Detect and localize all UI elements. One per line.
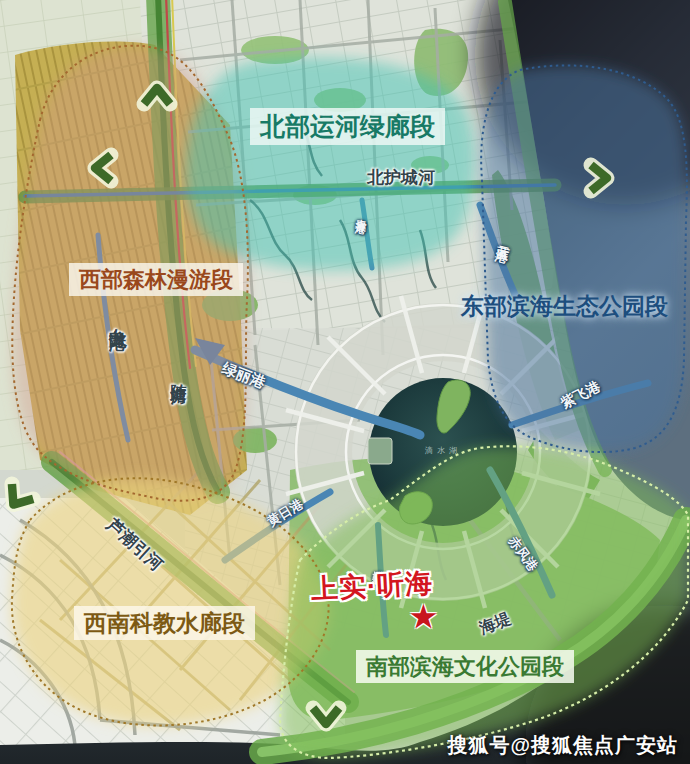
- zone-label-west-forest: 西部森林漫游段: [69, 263, 243, 296]
- river-label-chenghegang: 橙和港: [371, 562, 384, 568]
- zone-label-south-culture: 南部滨海文化公园段: [356, 650, 574, 683]
- river-label-suitanghe: 随塘河: [169, 371, 187, 377]
- zone-label-southwest-water: 西南科教水廊段: [74, 606, 255, 640]
- project-star-icon: ★: [410, 600, 437, 635]
- river-label-bailonggang: 白龙港: [107, 314, 128, 320]
- watermark: 搜狐号@搜狐焦点广安站: [447, 734, 678, 757]
- lake-label: 滴水湖: [425, 446, 461, 455]
- zone-label-north-canal: 北部运河绿廊段: [250, 108, 445, 145]
- river-label-beihuchenghe: 北护城河: [367, 168, 435, 188]
- zone-label-east-coastal: 东部滨海生态公园段: [461, 293, 668, 319]
- planning-map: 北部运河绿廊段 西部森林漫游段 东部滨海生态公园段 西南科教水廊段 南部滨海文化…: [0, 0, 690, 764]
- zone-north-canal: [186, 57, 476, 270]
